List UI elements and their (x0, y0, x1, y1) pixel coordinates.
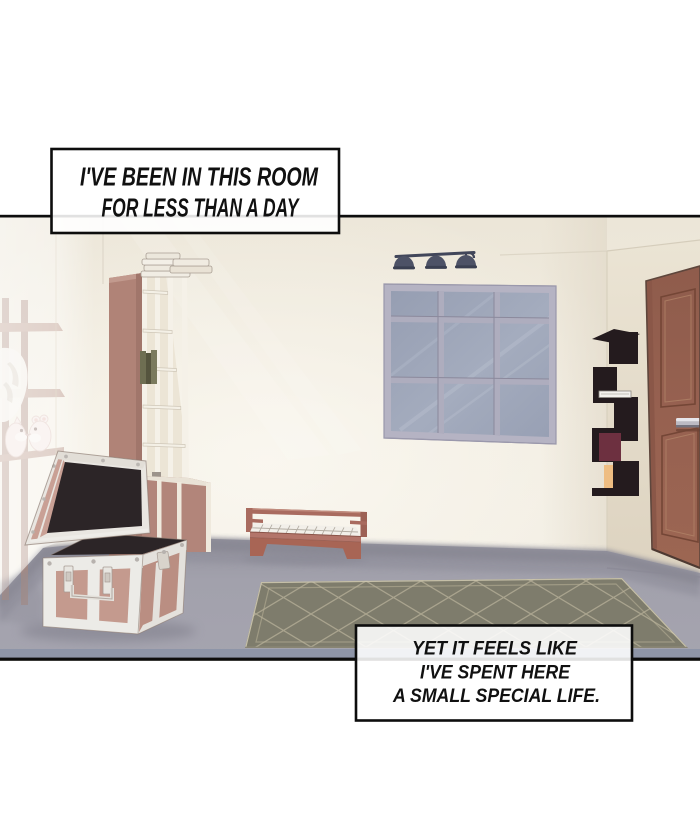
svg-text:YET IT FEELS LIKE: YET IT FEELS LIKE (412, 639, 578, 660)
svg-text:FOR LESS THAN A DAY: FOR LESS THAN A DAY (102, 193, 301, 223)
svg-text:I'VE SPENT HERE: I'VE SPENT HERE (420, 663, 571, 684)
svg-text:I'VE BEEN IN THIS ROOM: I'VE BEEN IN THIS ROOM (80, 162, 319, 192)
svg-text:A SMALL SPECIAL LIFE.: A SMALL SPECIAL LIFE. (392, 686, 600, 707)
